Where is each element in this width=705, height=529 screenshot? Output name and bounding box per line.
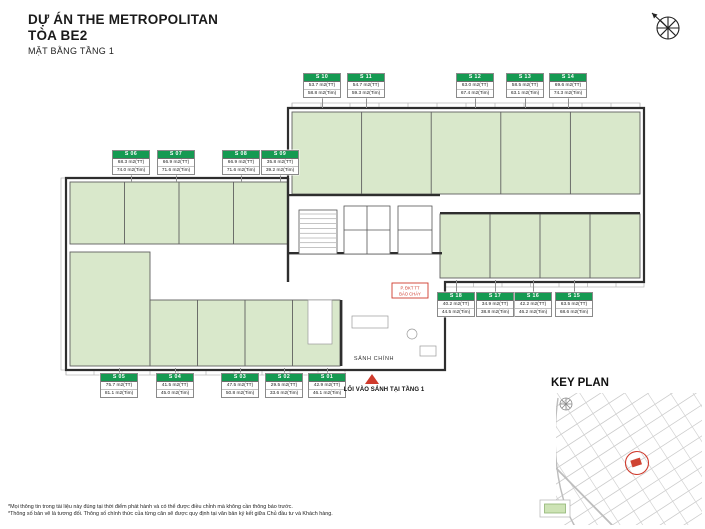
unit-area-tt: 54.7 m2(TT) (348, 82, 384, 90)
unit-label: S 17 34.9 m2(TT) 38.8 m2(Tim) (476, 292, 514, 317)
entrance-label: LỐI VÀO SẢNH TẠI TẦNG 1 (336, 387, 432, 393)
unit-id: S 04 (157, 374, 193, 382)
unit-label: S 14 69.6 m2(TT) 74.3 m2(Tim) (549, 73, 587, 98)
unit-id: S 07 (158, 151, 194, 159)
lobby-label: SẢNH CHÍNH (354, 355, 394, 362)
unit-id: S 15 (556, 293, 592, 301)
lobby-sofa (352, 316, 388, 328)
keyplan-compass-icon (560, 398, 572, 410)
keyplan-site-marker (626, 452, 649, 475)
label-leader-line (495, 280, 496, 292)
unit-label: S 16 42.2 m2(TT) 46.2 m2(Tim) (514, 292, 552, 317)
unit-area-tim: 71.6 m2(Tim) (223, 167, 259, 174)
keyplan-legend-swatch (540, 500, 570, 517)
lobby-seat (420, 346, 436, 356)
unit-label: S 03 47.5 m2(TT) 50.8 m2(Tim) (221, 373, 259, 398)
unit-id: S 12 (457, 74, 493, 82)
unit-area-tt: 53.7 m2(TT) (304, 82, 340, 90)
unit-id: S 11 (348, 74, 384, 82)
unit-area-tim: 74.3 m2(Tim) (550, 90, 586, 97)
unit-id: S 14 (550, 74, 586, 82)
unit-id: S 05 (101, 374, 137, 382)
unit-area-tim: 38.8 m2(Tim) (477, 309, 513, 316)
unit-area-tt: 63.5 m2(TT) (556, 301, 592, 309)
lobby-table (407, 329, 417, 339)
unit-area-tim: 67.4 m2(Tim) (457, 90, 493, 97)
floor-plan-page: DỰ ÁN THE METROPOLITAN TÒA BE2 MẶT BẰNG … (0, 0, 705, 529)
unit-area-tt: 69.6 m2(TT) (550, 82, 586, 90)
unit-label: S 18 40.2 m2(TT) 44.5 m2(Tim) (437, 292, 475, 317)
compass-icon (652, 13, 679, 39)
footnotes: *Mọi thông tin trong tài liệu này đúng t… (8, 504, 333, 518)
fire-room-label-1: P. ĐKT TT (400, 286, 420, 291)
unit-label: S 02 29.5 m2(TT) 33.6 m2(Tim) (265, 373, 303, 398)
unit-area-tt: 75.7 m2(TT) (101, 382, 137, 390)
label-leader-line (574, 280, 575, 292)
unit-area-tim: 45.0 m2(Tim) (157, 390, 193, 397)
unit-area-tim: 50.8 m2(Tim) (222, 390, 258, 397)
unit-label: S 13 58.5 m2(TT) 63.1 m2(Tim) (506, 73, 544, 98)
unit-area-tim: 39.2 m2(Tim) (262, 167, 298, 174)
unit-area-tim: 59.3 m2(Tim) (348, 90, 384, 97)
unit-label: S 11 54.7 m2(TT) 59.3 m2(Tim) (347, 73, 385, 98)
footnote-line: *Mọi thông tin trong tài liệu này đúng t… (8, 504, 333, 511)
unit-label: S 09 35.8 m2(TT) 39.2 m2(Tim) (261, 150, 299, 175)
unit-label: S 06 68.3 m2(TT) 74.0 m2(Tim) (112, 150, 150, 175)
unit-label: S 05 75.7 m2(TT) 81.1 m2(Tim) (100, 373, 138, 398)
unit-id: S 09 (262, 151, 298, 159)
unit-area-tt: 58.5 m2(TT) (507, 82, 543, 90)
unit-area-tim: 58.8 m2(Tim) (304, 90, 340, 97)
reception-desk (308, 300, 332, 344)
label-leader-line (456, 280, 457, 292)
unit-area-tim: 71.6 m2(Tim) (158, 167, 194, 174)
unit-id: S 16 (515, 293, 551, 301)
unit-id: S 06 (113, 151, 149, 159)
unit-area-tt: 34.9 m2(TT) (477, 301, 513, 309)
unit-area-tt: 29.5 m2(TT) (266, 382, 302, 390)
unit-area-tim: 81.1 m2(Tim) (101, 390, 137, 397)
unit-label: S 10 53.7 m2(TT) 58.8 m2(Tim) (303, 73, 341, 98)
fire-room: P. ĐKT TT BÁO CHÁY (392, 283, 428, 298)
unit-label: S 08 66.9 m2(TT) 71.6 m2(Tim) (222, 150, 260, 175)
unit-label: S 12 63.0 m2(TT) 67.4 m2(Tim) (456, 73, 494, 98)
unit-area-tt: 66.9 m2(TT) (158, 159, 194, 167)
unit-area-tt: 40.2 m2(TT) (438, 301, 474, 309)
unit-area-tt: 41.5 m2(TT) (157, 382, 193, 390)
unit-id: S 18 (438, 293, 474, 301)
unit-area-tim: 33.6 m2(Tim) (266, 390, 302, 397)
unit-area-tim: 74.0 m2(Tim) (113, 167, 149, 174)
unit-area-tt: 35.8 m2(TT) (262, 159, 298, 167)
entrance-arrow-icon (365, 374, 379, 384)
label-leader-line (533, 280, 534, 292)
unit-label: S 07 66.9 m2(TT) 71.6 m2(Tim) (157, 150, 195, 175)
unit-area-tim: 46.2 m2(Tim) (515, 309, 551, 316)
unit-label: S 04 41.5 m2(TT) 45.0 m2(Tim) (156, 373, 194, 398)
unit-label: S 01 42.9 m2(TT) 46.1 m2(Tim) (308, 373, 346, 398)
unit-area-tim: 68.6 m2(Tim) (556, 309, 592, 316)
unit-id: S 03 (222, 374, 258, 382)
unit-area-tt: 63.0 m2(TT) (457, 82, 493, 90)
unit-label: S 15 63.5 m2(TT) 68.6 m2(Tim) (555, 292, 593, 317)
keyplan-title: KEY PLAN (551, 377, 609, 389)
unit-id: S 01 (309, 374, 345, 382)
unit-area-tim: 63.1 m2(Tim) (507, 90, 543, 97)
unit-id: S 10 (304, 74, 340, 82)
unit-area-tt: 66.9 m2(TT) (223, 159, 259, 167)
unit-id: S 17 (477, 293, 513, 301)
unit-id: S 02 (266, 374, 302, 382)
unit-area-tim: 44.5 m2(Tim) (438, 309, 474, 316)
unit-area-tt: 42.2 m2(TT) (515, 301, 551, 309)
unit-id: S 08 (223, 151, 259, 159)
unit-area-tt: 68.3 m2(TT) (113, 159, 149, 167)
footnote-line: *Thông số bản vẽ là tương đối. Thông số … (8, 511, 333, 518)
unit-area-tt: 47.5 m2(TT) (222, 382, 258, 390)
unit-id: S 13 (507, 74, 543, 82)
fire-room-label-2: BÁO CHÁY (399, 292, 421, 297)
